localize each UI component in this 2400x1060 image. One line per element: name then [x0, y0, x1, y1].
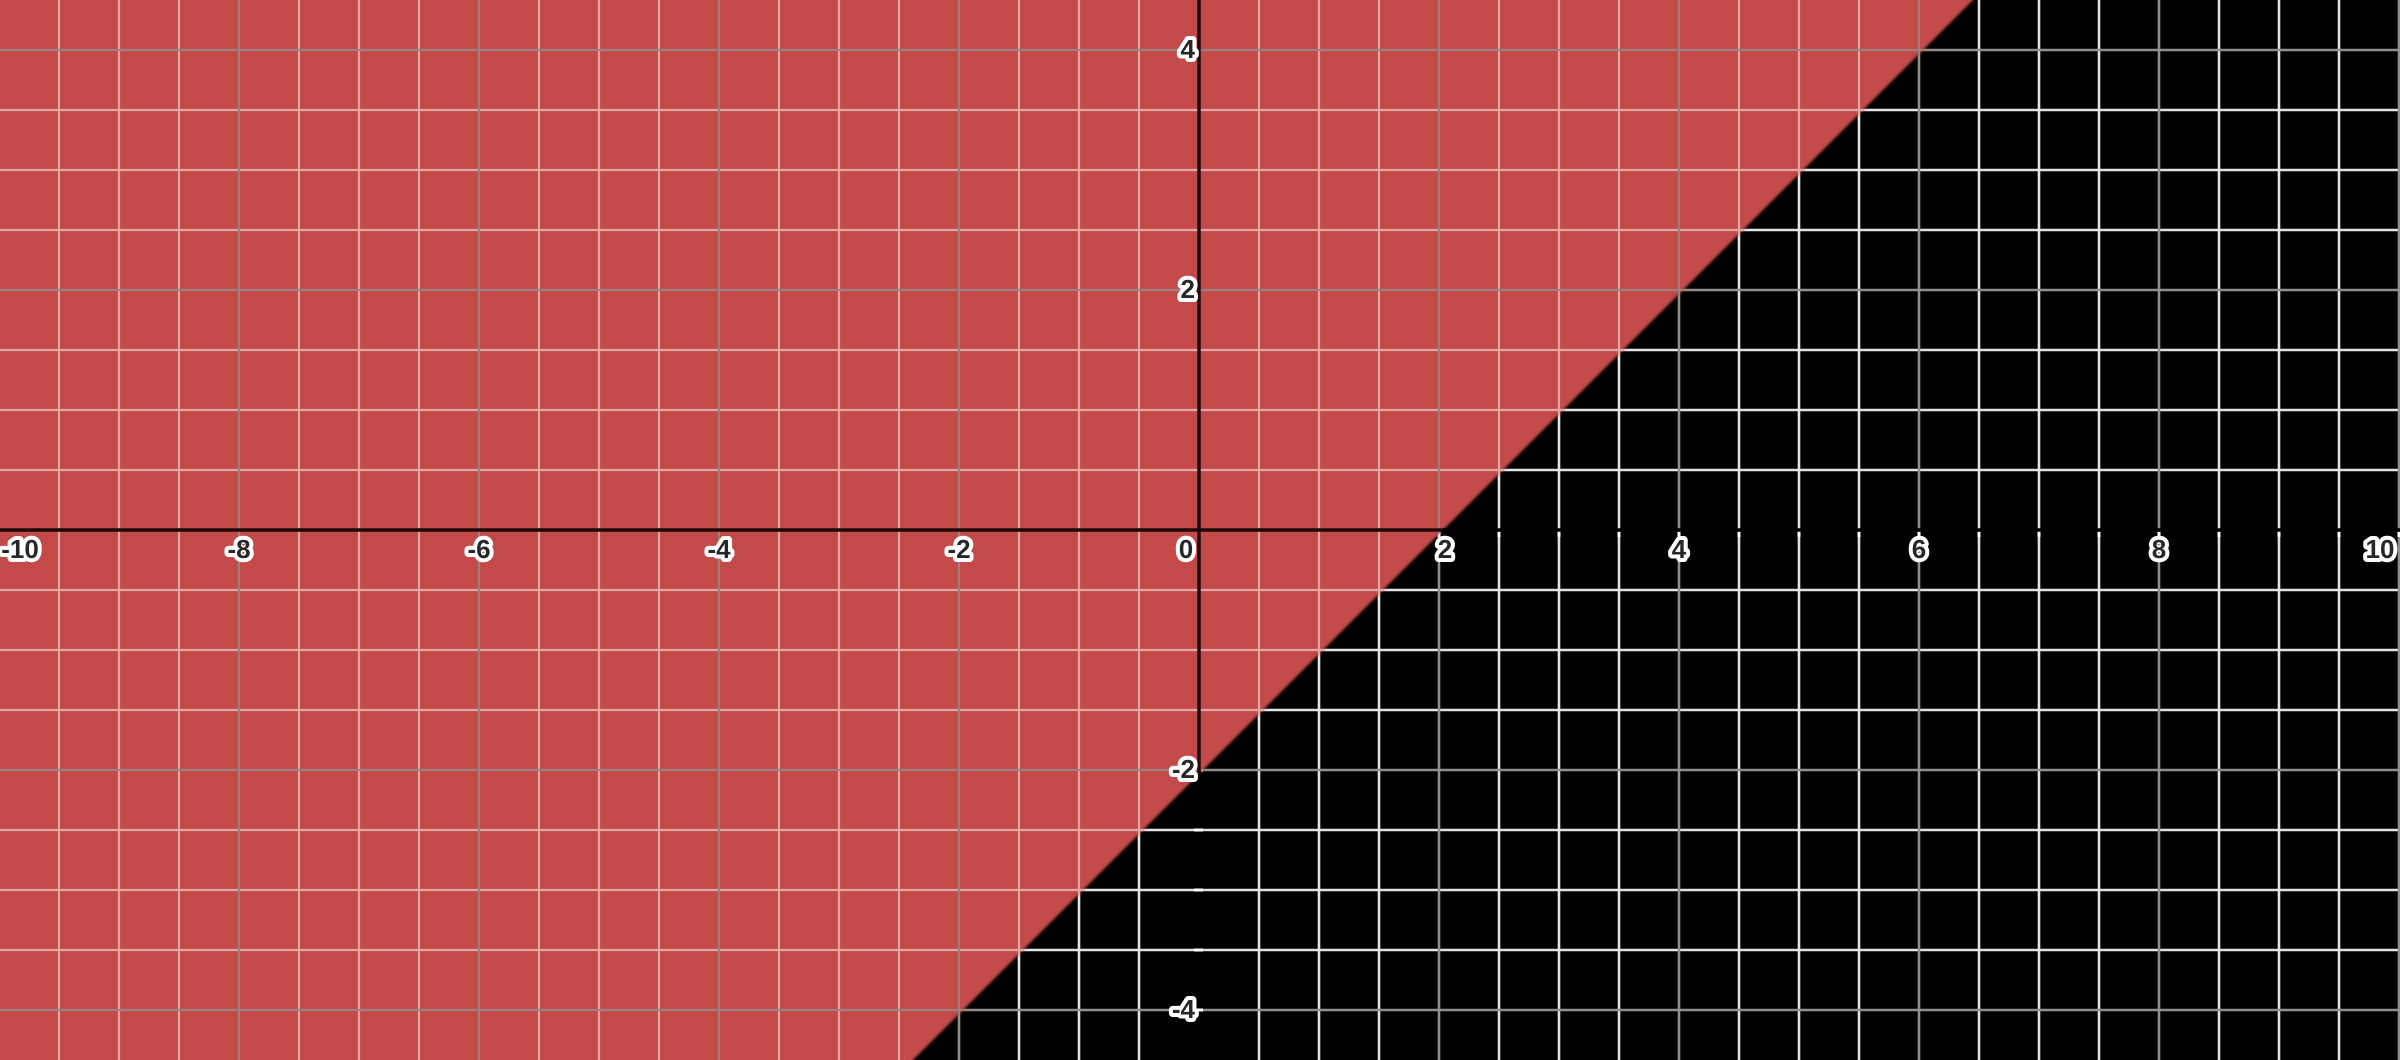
svg-text:4: 4: [1181, 34, 1196, 64]
svg-text:8: 8: [2152, 534, 2166, 564]
svg-text:4: 4: [1672, 534, 1687, 564]
svg-text:-4: -4: [1172, 994, 1196, 1024]
svg-text:2: 2: [1181, 274, 1195, 304]
svg-text:-8: -8: [227, 534, 250, 564]
svg-text:0: 0: [1179, 534, 1193, 564]
svg-text:-2: -2: [1172, 754, 1195, 784]
svg-text:-6: -6: [467, 534, 490, 564]
svg-text:6: 6: [1912, 534, 1926, 564]
svg-text:-10: -10: [1, 534, 39, 564]
svg-text:-4: -4: [707, 534, 731, 564]
svg-text:-2: -2: [947, 534, 970, 564]
svg-text:2: 2: [1438, 534, 1452, 564]
svg-text:10: 10: [2366, 534, 2395, 564]
